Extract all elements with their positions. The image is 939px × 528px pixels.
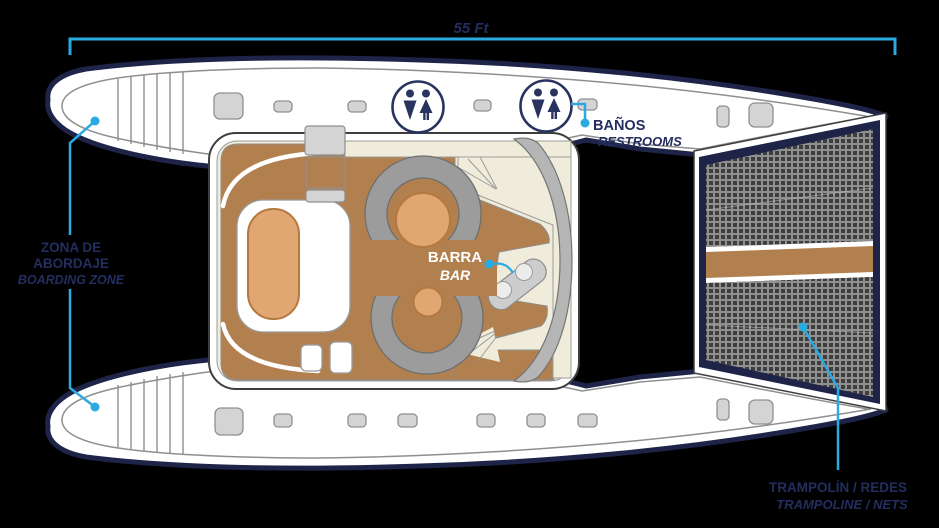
svg-text:ABORDAJE: ABORDAJE	[33, 256, 109, 271]
callout-dot-boarding-top	[91, 117, 100, 126]
svg-text:BAR: BAR	[440, 267, 471, 283]
callout-dot-restrooms	[581, 119, 590, 128]
companionway-steps	[305, 126, 345, 202]
svg-text:TRAMPOLÍN / REDES: TRAMPOLÍN / REDES	[769, 480, 907, 495]
callout-dot-bar	[485, 260, 494, 269]
boat-deck-plan-svg: 55 Ft	[0, 0, 939, 528]
dimension-label: 55 Ft	[453, 20, 489, 37]
deck-platform	[209, 126, 579, 389]
step-seat-left	[301, 345, 322, 371]
step-seat-right	[330, 342, 352, 373]
svg-text:BOARDING ZONE: BOARDING ZONE	[18, 273, 125, 287]
dining-table-bottom	[414, 288, 443, 317]
sunpad-cushion	[248, 209, 299, 319]
restroom-icon-left	[393, 82, 444, 133]
svg-text:BARRA: BARRA	[428, 249, 482, 266]
svg-text:RESTROOMS: RESTROOMS	[598, 134, 682, 149]
callout-dot-boarding-bottom	[91, 403, 100, 412]
restroom-icon-right	[521, 81, 572, 132]
catamaran-deck-plan: 55 Ft	[0, 0, 939, 528]
svg-text:BAÑOS: BAÑOS	[593, 116, 646, 134]
svg-text:ZONA DE: ZONA DE	[41, 240, 101, 255]
trampoline-nets	[694, 113, 886, 411]
dining-table-top	[396, 193, 450, 247]
svg-text:TRAMPOLINE / NETS: TRAMPOLINE / NETS	[776, 497, 908, 512]
